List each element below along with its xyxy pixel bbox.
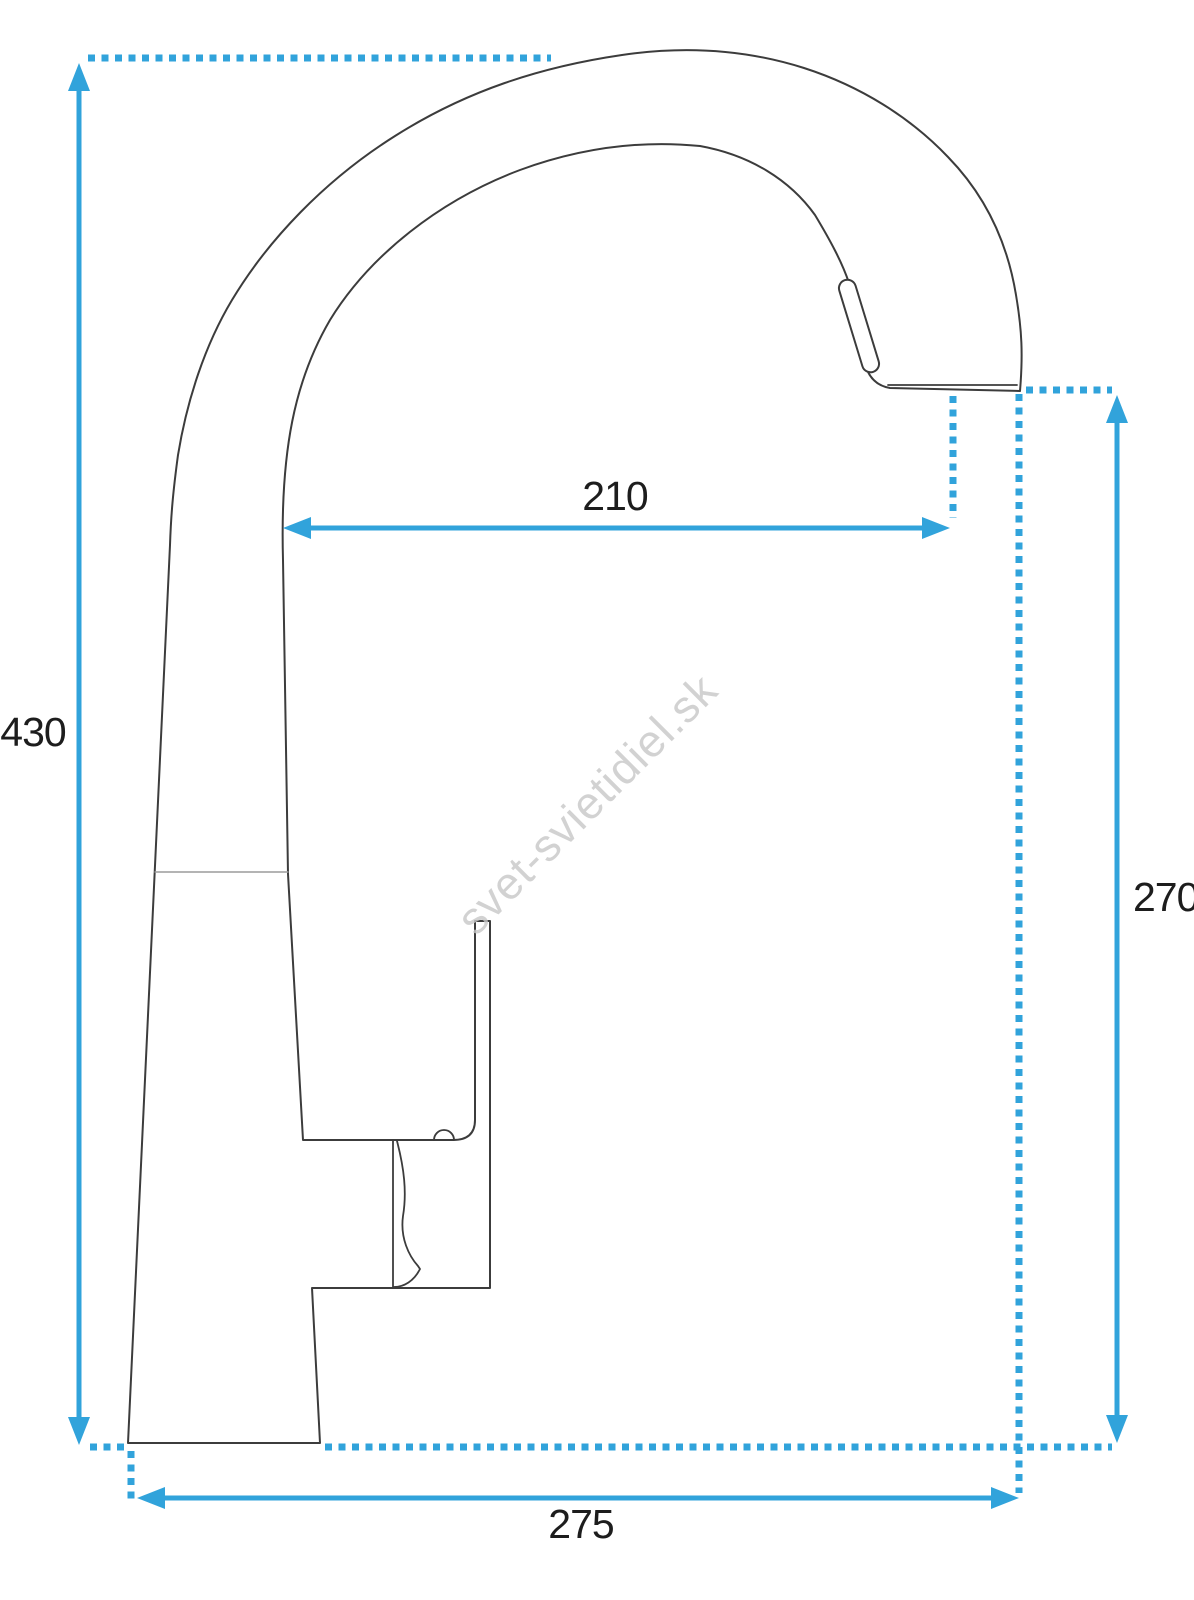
arrow-left-icon [137, 1487, 165, 1509]
dim-label-270: 270 [1133, 874, 1194, 920]
dimension-overall-depth: 275 [137, 1487, 1019, 1547]
faucet-dimension-diagram: svet-svietidiel.sk 430 210 2 [0, 0, 1194, 1600]
arrow-up-icon [68, 63, 90, 91]
arrow-right-icon [922, 517, 950, 539]
watermark-text: svet-svietidiel.sk [447, 664, 727, 944]
handle-pivot-dome [434, 1130, 454, 1140]
drawing-canvas: svet-svietidiel.sk 430 210 2 [0, 0, 1194, 1600]
arrow-up-icon [1106, 395, 1128, 423]
dimension-overall-height: 430 [0, 63, 90, 1445]
faucet-silhouette [128, 50, 1022, 1443]
dim-label-210: 210 [582, 473, 648, 519]
dim-label-430: 430 [0, 709, 66, 755]
dimension-spout-reach: 210 [283, 473, 950, 539]
dim-label-275: 275 [548, 1501, 614, 1547]
arrow-right-icon [991, 1487, 1019, 1509]
arrow-down-icon [1106, 1415, 1128, 1443]
arrow-down-icon [68, 1417, 90, 1445]
dimension-spout-height: 270 [1106, 395, 1194, 1443]
faucet-drawing [128, 50, 1022, 1443]
arrow-left-icon [283, 517, 311, 539]
